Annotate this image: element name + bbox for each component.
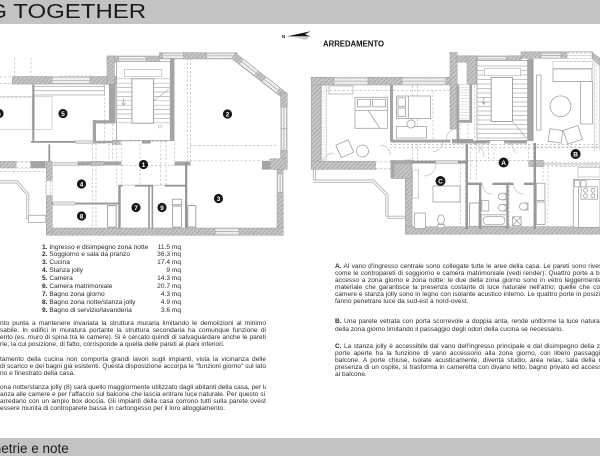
svg-text:9: 9 — [160, 205, 164, 212]
svg-text:4: 4 — [80, 181, 84, 188]
svg-text:ARREDAMENTO: ARREDAMENTO — [323, 39, 384, 49]
svg-text:3: 3 — [217, 196, 221, 203]
svg-text:2: 2 — [226, 111, 230, 118]
svg-text:8: 8 — [80, 213, 84, 220]
svg-text:C: C — [438, 179, 443, 186]
svg-text:A: A — [501, 160, 506, 167]
svg-text:7: 7 — [134, 205, 138, 212]
svg-text:B: B — [573, 152, 578, 159]
svg-text:1: 1 — [142, 162, 146, 169]
svg-text:N: N — [282, 34, 286, 39]
svg-text:5: 5 — [61, 111, 65, 118]
